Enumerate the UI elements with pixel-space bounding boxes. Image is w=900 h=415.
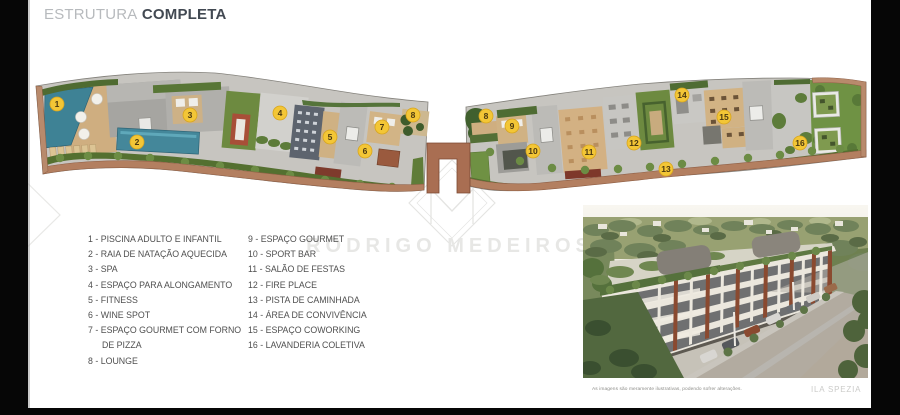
- svg-text:1: 1: [55, 99, 60, 109]
- svg-text:8: 8: [484, 111, 489, 121]
- svg-text:6: 6: [363, 146, 368, 156]
- svg-text:2: 2: [135, 137, 140, 147]
- svg-text:3: 3: [188, 110, 193, 120]
- svg-text:5: 5: [328, 132, 333, 142]
- svg-text:10: 10: [528, 146, 538, 156]
- svg-text:13: 13: [661, 164, 671, 174]
- svg-text:4: 4: [278, 108, 283, 118]
- svg-text:9: 9: [510, 121, 515, 131]
- svg-text:12: 12: [629, 138, 639, 148]
- svg-text:7: 7: [380, 122, 385, 132]
- svg-text:15: 15: [719, 112, 729, 122]
- svg-text:14: 14: [677, 90, 687, 100]
- svg-text:16: 16: [795, 138, 805, 148]
- svg-text:8: 8: [411, 110, 416, 120]
- svg-text:11: 11: [585, 147, 594, 157]
